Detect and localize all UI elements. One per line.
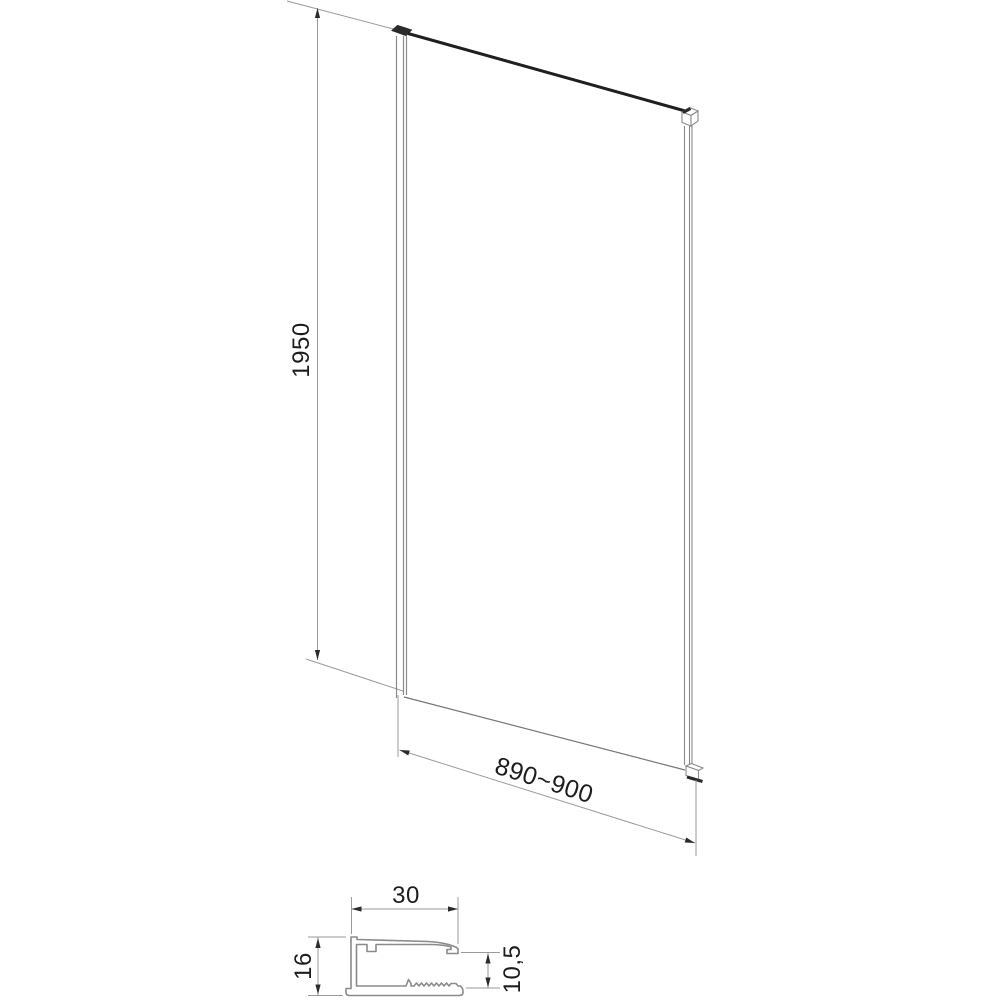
profile-height-dimension-label: 16: [290, 952, 318, 980]
drawing-svg: [0, 0, 1000, 1000]
technical-drawing-canvas: 1950 890~900 30 16 10,5: [0, 0, 1000, 1000]
glass-panel-outline: [404, 34, 692, 771]
height-dimension-label: 1950: [288, 322, 316, 377]
bottom-glass-clamp: [686, 764, 703, 782]
glass-slot-dimension-label: 10,5: [499, 945, 527, 994]
profile-cross-section: [346, 937, 463, 996]
top-glass-clamp: [682, 108, 698, 127]
wall-profile-elevation: [397, 36, 407, 698]
profile-width-dimension-label: 30: [392, 882, 420, 910]
glass-slot-dimension-lines: [461, 953, 500, 989]
